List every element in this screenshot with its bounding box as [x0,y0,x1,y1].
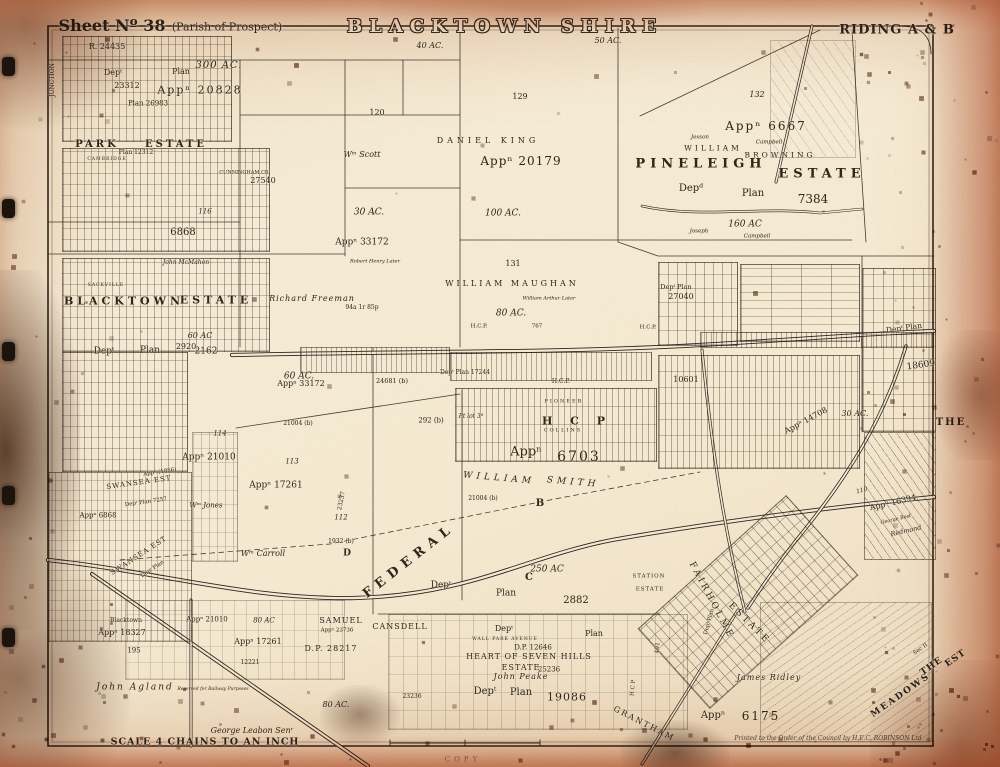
no-2162: 2162 [195,348,218,357]
letter-b: B [536,499,544,509]
area-60ac-bt: 60 AC [188,332,213,340]
letter-d: D [343,550,351,559]
no-18609: 18609 [906,360,936,373]
lot-block [192,432,238,562]
no-129: 129 [512,93,527,101]
area-94a: 94a 1r 85p [345,305,378,311]
no-6868: 6868 [170,228,195,238]
joseph: Joseph [690,229,709,235]
sheet-parish: (Parish of Prospect) [172,22,282,33]
dept-sh: Depᵗ [474,687,497,697]
appn-20828: Appⁿ 20828 [157,85,242,96]
plan-sh2: Plan [585,630,603,638]
no-132: 132 [749,91,764,99]
dept-plan-vert: Depᵗ Plan [704,608,716,635]
no-110: 110 [856,487,869,496]
cambridge-st: CAMBRIDGE [87,158,126,163]
no-131: 131 [505,260,520,268]
reserved-railway: Reserved for Railway Purposes [177,688,248,693]
no-120: 120 [369,109,384,117]
dept-plan-27040-1: Depᵗ Plan [660,284,691,291]
dept-plan-17244: Depᵗ Plan 17244 [440,370,490,376]
binder-hole [2,57,15,76]
no-23236: 23236 [402,694,421,700]
richard-freeman: Richard Freeman [269,295,355,303]
meadows-est-2: THE [919,656,945,678]
appn-16394: Appⁿ 16394 [869,494,917,512]
hcp-small-1: H.C.P. [471,324,488,330]
blacktown-small: Blacktown [110,618,142,624]
map-linework [0,0,1000,767]
plan-12312: Plan 12312 [119,150,153,156]
lot-block [864,432,936,560]
fairholme-estate-2: ESTATE [726,601,771,646]
area-100ac: 100 AC. [485,210,521,219]
wm-jones: Wᵐ Jones [190,503,223,510]
sheet-title: Sheet Nº 38 [59,18,166,34]
john-mcmahon: John McMahon [163,260,209,266]
plan-federal: Plan [496,590,516,599]
lot-block [48,472,192,642]
william-arthur: William Arthur Later [523,297,576,302]
map-sheet[interactable]: 40 AC.50 AC.R. 24435300 AC.DepᵗPlan23312… [0,0,1000,767]
appn-21010: Appⁿ 21010 [182,454,235,463]
lot-block [770,40,856,158]
appn-21010-b: Appⁿ 21010 [186,617,228,624]
lot-block [455,388,657,462]
appn-6667: Appⁿ 6667 [725,120,807,132]
no-292b: 292 (b) [418,418,444,425]
no-491: 491 [655,642,662,654]
william-smith-1: WILLIAM [463,471,536,486]
plan-bt: Plan [140,347,160,356]
pineleigh-estate-2: ESTATE [778,168,865,181]
appn-33172-lower: Appⁿ 33172 [277,380,324,388]
wm-scott: Wᵐ Scott [344,151,381,159]
hcp-big: H C P [542,416,612,427]
foxing-speckles [0,0,1,1]
appn-33172-upper: Appⁿ 33172 [335,239,388,248]
no-10601: 10601 [673,376,698,384]
hcp-small-3: H.C.P. [552,379,570,385]
no-27540: 27540 [250,177,275,185]
no-2920: 2920 [176,343,196,351]
william-smith-2: SMITH [546,476,599,490]
lot-block [700,332,934,348]
daniel-king: DANIEL KING [437,137,540,145]
william-browning-1: WILLIAM [684,144,742,152]
lot-block [388,614,688,730]
area-80ac-b: 80 AC [253,618,275,625]
campbell-2: Campbell [744,234,771,240]
lot-block [658,262,738,346]
park-estate-1: PARK [75,140,119,150]
jesson: Jesson [691,135,709,141]
no-113: 113 [285,459,298,466]
hcp-small-2: H.C.P. [640,325,657,331]
dept-ul: Depᵗ [104,69,122,77]
wm-carroll: Wᵐ Carroll [241,550,285,558]
dp-12646: D.P. 12646 [514,645,552,652]
appn-23736: Appⁿ 23736 [321,628,354,634]
collins-st: COLLINS [544,429,582,434]
dept-sh2: Depᵗ [495,625,513,633]
dept-plan-7257: Depᵗ Plan 7257 [125,497,168,508]
no-2882: 2882 [563,596,588,606]
no-25236: 25236 [538,667,560,674]
area-300ac: 300 AC. [196,61,243,71]
pioneer-st: PIONEER [545,400,584,405]
no-1932: 1932 (b) [328,539,354,545]
seven-hills-estate-1: HEART OF SEVEN HILLS [466,653,592,661]
paper-grain [0,0,1000,767]
no-116: 116 [198,209,211,216]
dept-bt: Depᵗ [94,348,115,357]
swansea-est-2: SWANSEA EST [110,535,169,577]
binder-hole [2,486,15,505]
no-767: 767 [532,324,543,330]
cunningham-cr: CUNNINGHAM CR [219,171,268,176]
lot-block [740,264,860,342]
area-30ac: 30 AC. [354,209,384,218]
no-24681: 24681 (b) [376,378,408,385]
dept-plan-18609-1: Depᵗ Plan [886,322,923,334]
no-19086: 19086 [547,692,587,703]
sec-ii: Sec II [913,643,929,657]
plan-26983: Plan 26983 [128,101,168,108]
redmond: Redmond [890,524,922,537]
lot-block [638,495,859,709]
binder-hole [2,628,15,647]
subdivision-lots-layer [0,0,1000,767]
campbell-1: Campbell [756,140,783,146]
robert-henry: Robert Henry Later [350,260,400,265]
riding-label: RIDING A & B [839,24,955,37]
george-leabon: George Leabon Senʳ [211,727,294,735]
dept-federal: Depᵗ [431,582,452,591]
grantham: GRANTHAM [612,705,676,743]
appn-6175-1: Appⁿ [701,711,725,721]
appn-17261-b: Appⁿ 17261 [234,638,281,646]
george-best: George Best [880,514,912,526]
binder-hole [2,199,15,218]
scale-note: SCALE 4 CHAINS TO AN INCH [111,737,300,747]
pt-lot-3: Pt lot 3ᵈ [459,414,483,420]
park-estate-2: ESTATE [145,140,207,150]
area-80ac: 80 AC. [496,310,526,319]
dp-28217: D.P. 28217 [305,645,358,653]
the-right: THE [936,418,967,428]
no-23237: 23237 [337,491,347,511]
appn-6175-2: 6175 [742,710,781,722]
samuel: SAMUEL [319,617,362,625]
appn-17261: Appⁿ 17261 [249,482,302,491]
john-agland: John Agland [96,684,174,693]
copy-stamp: COPY [445,757,481,764]
appn-6868: Appⁿ 6868 [79,513,116,520]
area-40ac: 40 AC. [417,42,444,50]
swansea-est-1: SWANSEA EST [106,475,172,491]
meadows-est-1: MEADOWS [870,672,933,720]
seven-hills-estate-2: ESTATE [502,664,541,672]
no-21004-a: 21004 (b) [283,421,313,427]
dept-plan-sw2: Depᵗ Plan [140,560,165,579]
appn-1856: Appⁿ (1856) [143,468,177,478]
lot-block [658,355,860,469]
no-12221: 12221 [240,660,259,666]
shire-title: BLACKTOWN SHIRE [347,18,663,36]
letter-c: C [525,573,533,583]
binder-hole [2,342,15,361]
cansdell: CANSDELL [372,623,427,631]
no-112: 112 [334,515,347,522]
aging-stains-layer [0,0,1000,767]
junction-vert: JUNCTION [50,63,56,97]
appn-20179: Appⁿ 20179 [480,155,561,167]
james-ridley: James Ridley [737,674,801,682]
lot-block [300,347,450,373]
no-114: 114 [213,431,226,438]
vignette [0,0,1000,767]
appn-18327: Appⁿ 18327 [98,629,145,637]
station-estate-2: ESTATE [636,587,665,593]
no-23312: 23312 [114,82,139,90]
lot-block [862,268,936,432]
lot-block [62,36,232,142]
lot-block [62,148,270,252]
map-labels-layer: 40 AC.50 AC.R. 24435300 AC.DepᵗPlan23312… [0,0,1000,767]
lot-block [62,258,270,352]
lot-block [450,352,652,381]
fairholme-estate-1: FAIRHOLME [687,561,735,641]
area-250ac: 250 AC [530,566,563,575]
scanned-map-page: 40 AC.50 AC.R. 24435300 AC.DepᵗPlan23312… [0,0,1000,767]
appn-14708: Appⁿ 14708 [783,406,829,435]
blacktown-estate-1: BLACKTOWN [64,296,184,307]
hcp-vert: H C P [631,680,638,697]
wall-park-ave: WALL PARK AVENUE [472,638,538,643]
sackville-st: SACKVILLE [88,284,124,289]
plan-pineleigh: Plan [742,189,764,199]
william-maughan: WILLIAM MAUGHAN [445,280,579,288]
appn-6703-2: 6703 [557,450,601,464]
pineleigh-estate-1: PINELEIGH [635,158,766,171]
credit-note: Printed to the Order of the Council by H… [734,736,921,742]
plan-sh: Plan [510,688,532,698]
station-estate-1: STATION [633,574,666,580]
depd-pineleigh: Depᵈ [679,184,703,194]
john-peake: John Peake [494,673,549,681]
blacktown-estate-2: ESTATE [180,295,252,306]
lot-block [125,600,345,680]
william-browning-2: BROWNING [744,151,815,159]
area-30ac-r: 30 AC. [842,410,869,418]
meadows-est-3: EST [944,649,968,670]
no-195: 195 [127,648,140,655]
r-24435: R. 24435 [89,43,126,51]
lot-block [62,352,188,472]
lot-block [760,602,932,742]
area-80ac-c: 80 AC. [323,701,350,709]
area-60ac: 60 AC. [284,373,314,382]
no-27040: 27040 [668,293,693,301]
plan-ul: Plan [172,68,190,76]
area-50ac: 50 AC. [595,37,622,45]
no-21004-b: 21004 (b) [468,496,498,502]
area-160ac: 160 AC [728,221,761,230]
appn-6703-1: Appⁿ [510,446,542,459]
federal-road: FEDERAL [361,521,458,600]
no-7384: 7384 [798,193,829,205]
